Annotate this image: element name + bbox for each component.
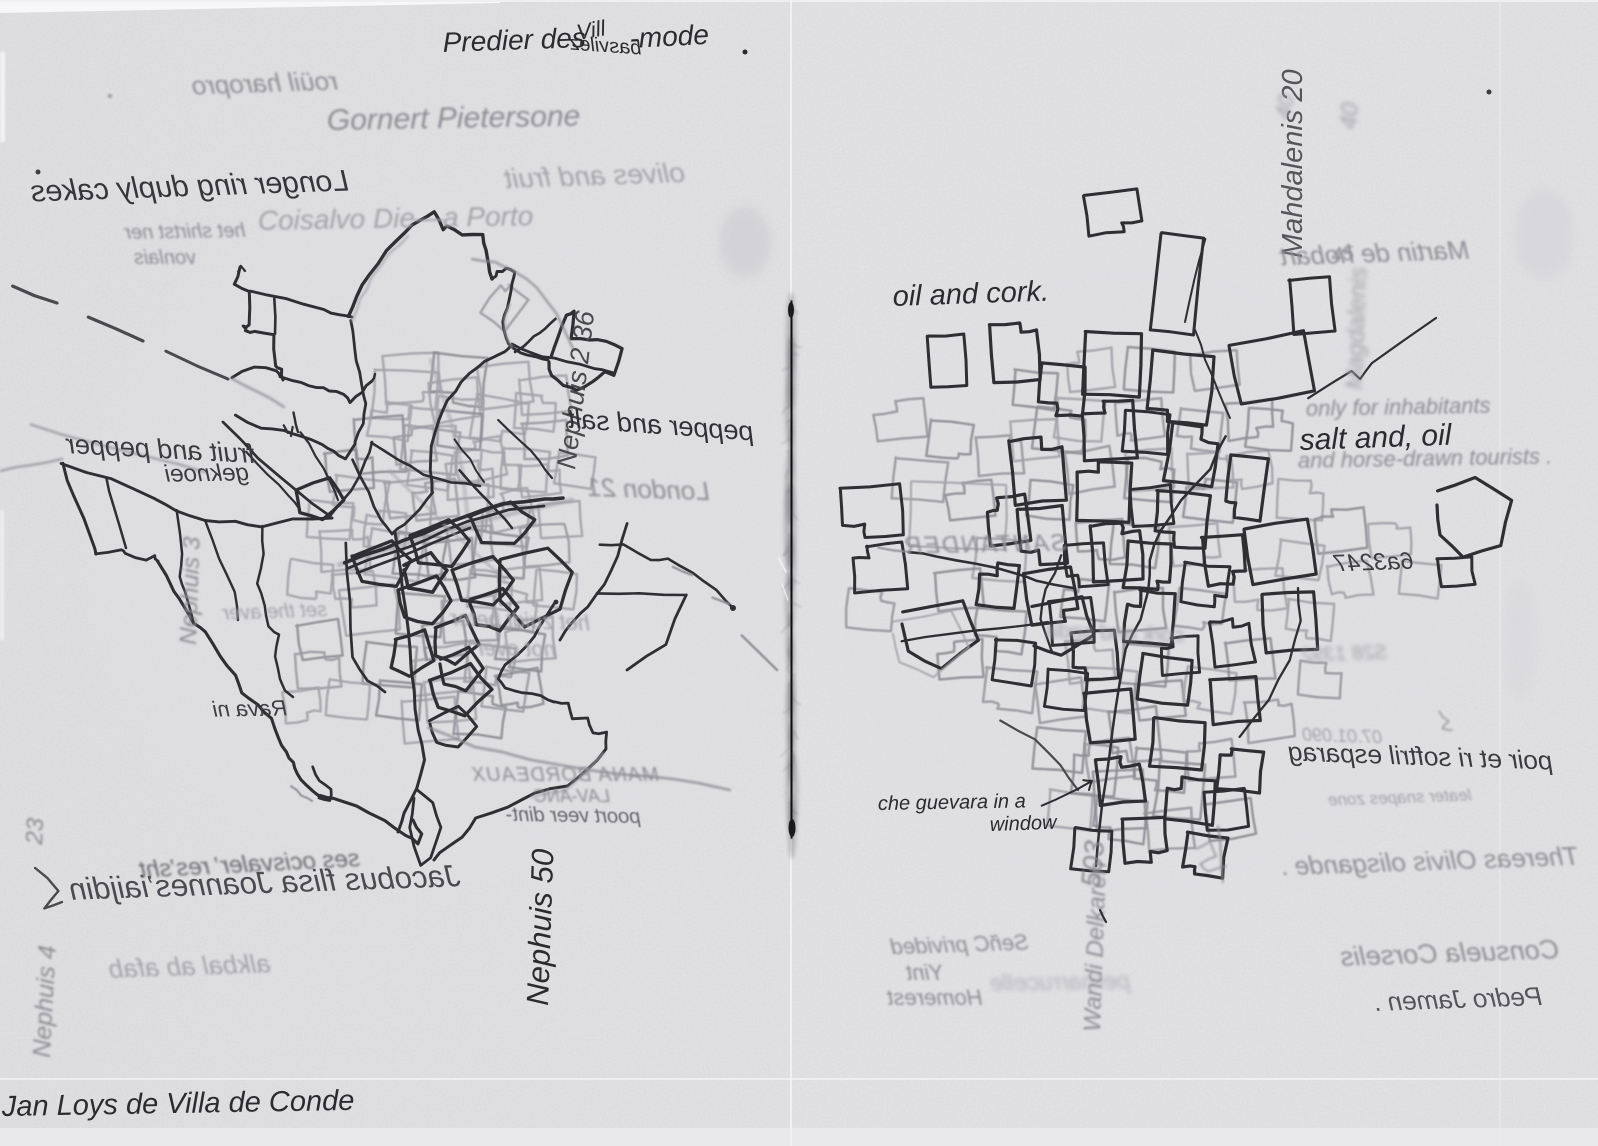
svg-text:Jan Loys de Villa de Conde: Jan Loys de Villa de Conde xyxy=(1,1085,355,1123)
svg-text:oil and cork.: oil and cork. xyxy=(892,276,1049,313)
svg-text:geknoei: geknoei xyxy=(164,459,249,487)
svg-text:Yint: Yint xyxy=(905,960,943,985)
svg-text:503: 503 xyxy=(1075,839,1110,889)
svg-text:MANA BORDEAUX: MANA BORDEAUX xyxy=(471,764,659,786)
svg-text:6a3247: 6a3247 xyxy=(1332,548,1415,578)
svg-text:SANTANDER: SANTANDER xyxy=(903,530,1068,560)
svg-text:het shirtst ner: het shirtst ner xyxy=(123,220,246,244)
svg-text:poort veer dint-: poort veer dint- xyxy=(505,804,641,828)
svg-text:Magdalenis: Magdalenis xyxy=(1341,267,1372,391)
svg-text:het zuidt beter: het zuidt beter xyxy=(448,606,590,636)
svg-text:Nephuis 50: Nephuis 50 xyxy=(520,848,560,1006)
svg-text:-mode: -mode xyxy=(629,19,710,54)
svg-text:Predier des: Predier des xyxy=(442,22,586,58)
svg-text:Vill: Vill xyxy=(575,15,609,45)
svg-text:alkbal ab afab: alkbal ab afab xyxy=(108,948,271,984)
svg-text:Pedro Jamen .: Pedro Jamen . xyxy=(1373,981,1543,1017)
svg-text:set the aver: set the aver xyxy=(221,599,328,625)
svg-text:S28 1392: S28 1392 xyxy=(1302,642,1388,667)
svg-text:and horse-drawn tourists .: and horse-drawn tourists . xyxy=(1298,444,1553,473)
svg-text:cork and soda: cork and soda xyxy=(1046,618,1185,648)
svg-text:only for inhabitants: only for inhabitants xyxy=(1306,393,1491,421)
svg-text:Coisalvo Die—a Porto: Coisalvo Die—a Porto xyxy=(258,200,534,236)
svg-text:Rava ni: Rava ni xyxy=(211,695,287,721)
svg-text:pernarrucelle: pernarrucelle xyxy=(990,968,1132,997)
svg-text:07.01.090: 07.01.090 xyxy=(1302,725,1383,748)
svg-text:vonlais: vonlais xyxy=(134,247,196,269)
svg-text:SeñC privided: SeñC privided xyxy=(889,930,1029,960)
svg-text:40: 40 xyxy=(1335,101,1364,131)
svg-text:Nephuis 4: Nephuis 4 xyxy=(28,944,62,1058)
svg-text:che guevara in a: che guevara in a xyxy=(878,790,1026,815)
svg-text:roüil haropro: roüil haropro xyxy=(191,65,338,100)
svg-text:window: window xyxy=(989,812,1058,836)
svg-text:23: 23 xyxy=(21,817,49,847)
svg-text:LAV-ANC: LAV-ANC xyxy=(533,786,610,806)
svg-text:not over: not over xyxy=(475,635,557,661)
svg-text:Gornert Pietersone: Gornert Pietersone xyxy=(327,100,581,137)
svg-text:olives and fruit: olives and fruit xyxy=(503,157,686,194)
svg-text:London 21: London 21 xyxy=(586,472,710,506)
svg-text:Homerest: Homerest xyxy=(886,985,982,1010)
svg-text:Nephuis 3: Nephuis 3 xyxy=(175,536,206,646)
svg-text:40: 40 xyxy=(1270,92,1299,121)
